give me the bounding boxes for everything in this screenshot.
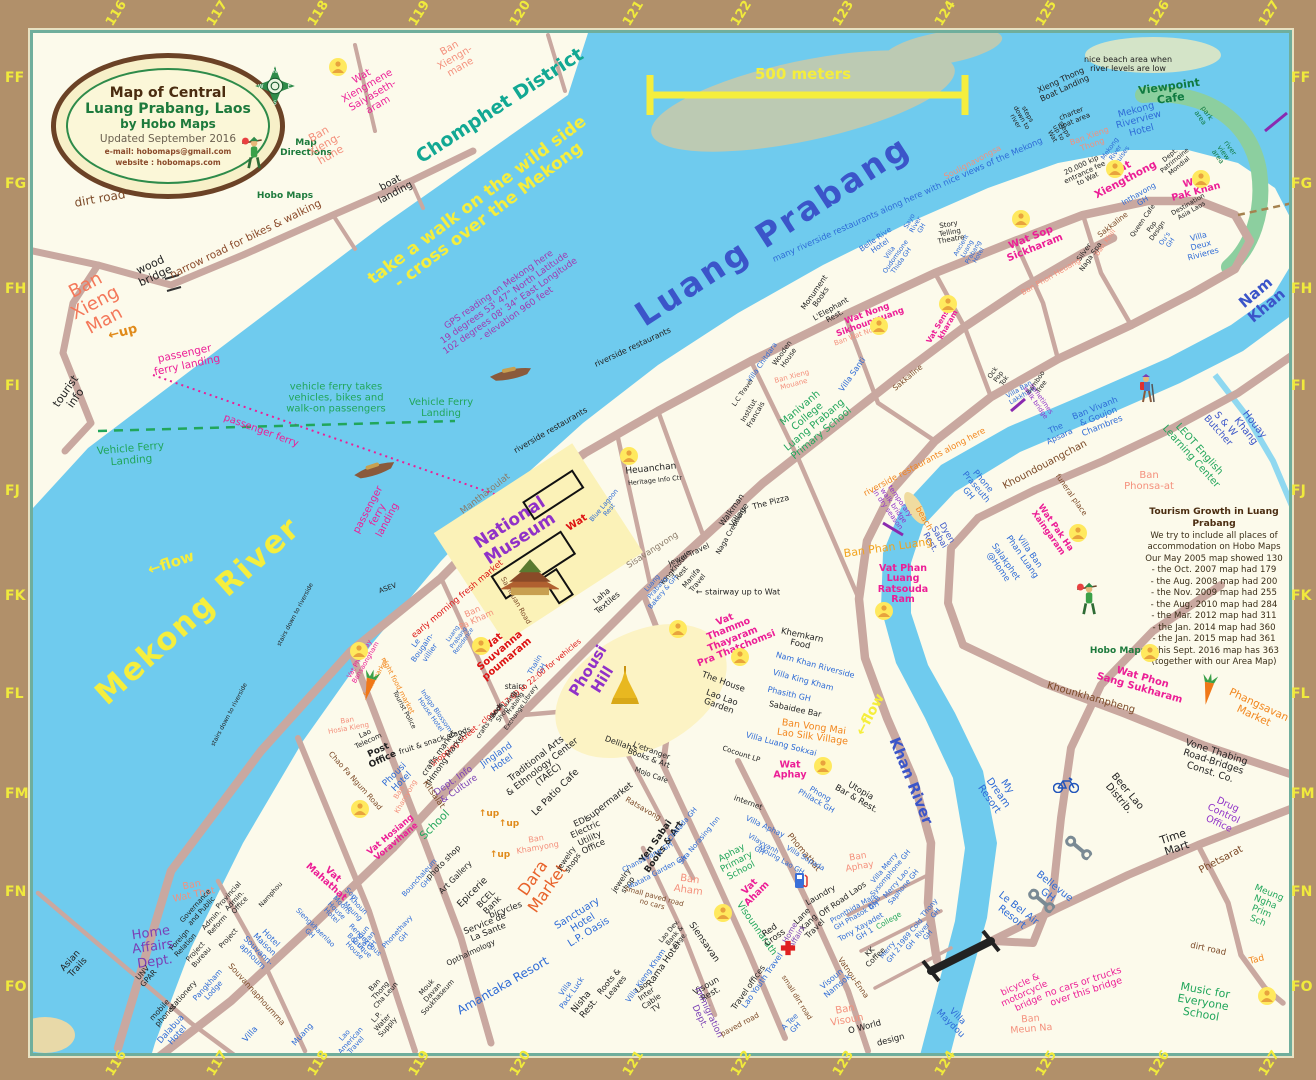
grid-number-label: 124 bbox=[932, 0, 959, 29]
grid-letter-label: FO bbox=[5, 979, 26, 995]
grid-letter-label: FF bbox=[5, 70, 24, 86]
grid-letter-label: FH bbox=[5, 281, 26, 297]
map-title-line1: Map of Central bbox=[110, 85, 226, 101]
grid-number-label: 127 bbox=[1256, 0, 1283, 29]
grid-letter-label: FN bbox=[1291, 884, 1312, 900]
grid-letter-label: FG bbox=[1291, 176, 1312, 192]
grid-letter-label: FL bbox=[5, 686, 23, 702]
title-card: Map of Central Luang Prabang, Laos by Ho… bbox=[51, 53, 285, 199]
compass-caption: Map Directions bbox=[271, 138, 341, 158]
grid-letter-label: FO bbox=[1291, 979, 1312, 995]
grid-letter-label: FI bbox=[1291, 378, 1306, 394]
title-card-inner: Map of Central Luang Prabang, Laos by Ho… bbox=[66, 68, 270, 184]
hobo-maps-caption-1: Hobo Maps bbox=[255, 191, 315, 201]
grid-letter-label: FJ bbox=[5, 483, 20, 499]
grid-number-label: 126 bbox=[1146, 0, 1173, 29]
grid-number-label: 121 bbox=[620, 0, 647, 29]
map-title-line3: by Hobo Maps bbox=[120, 117, 216, 131]
grid-letter-label: FG bbox=[5, 176, 26, 192]
grid-letter-label: FM bbox=[5, 786, 29, 802]
grid-letter-label: FJ bbox=[1291, 483, 1306, 499]
map-email: e-mail: hobomaps@gmail.com bbox=[105, 147, 232, 156]
map-title-line2: Luang Prabang, Laos bbox=[85, 101, 251, 117]
grid-letter-label: FK bbox=[5, 588, 25, 604]
grid-number-label: 125 bbox=[1033, 0, 1060, 29]
map-canvas: Map of Central Luang Prabang, Laos by Ho… bbox=[30, 30, 1292, 1056]
grid-number-label: 122 bbox=[728, 0, 755, 29]
grid-number-label: 117 bbox=[204, 0, 231, 29]
grid-letter-label: FN bbox=[5, 884, 26, 900]
beach-top-right bbox=[1085, 37, 1221, 73]
map-frame: Map of Central Luang Prabang, Laos by Ho… bbox=[0, 0, 1316, 1080]
grid-letter-label: FF bbox=[1291, 70, 1310, 86]
grid-number-label: 118 bbox=[305, 0, 332, 29]
grid-letter-label: FL bbox=[1291, 686, 1309, 702]
map-website: website : hobomaps.com bbox=[115, 158, 220, 167]
tourism-growth-title: Tourism Growth in Luang Prabang bbox=[1128, 506, 1292, 531]
grid-letter-label: FH bbox=[1291, 281, 1312, 297]
grid-letter-label: FK bbox=[1291, 588, 1311, 604]
grid-letter-label: FM bbox=[1291, 786, 1315, 802]
map-updated-date: Updated September 2016 bbox=[100, 133, 236, 145]
grid-number-label: 120 bbox=[507, 0, 534, 29]
grid-number-label: 119 bbox=[406, 0, 433, 29]
tourism-growth-body: We try to include all places of accommod… bbox=[1128, 531, 1292, 669]
grid-number-label: 123 bbox=[830, 0, 857, 29]
grid-number-label: 116 bbox=[103, 0, 130, 29]
tourism-growth-box: Tourism Growth in Luang Prabang We try t… bbox=[1128, 506, 1292, 669]
phousi-hill-area bbox=[533, 597, 750, 786]
grid-letter-label: FI bbox=[5, 378, 20, 394]
